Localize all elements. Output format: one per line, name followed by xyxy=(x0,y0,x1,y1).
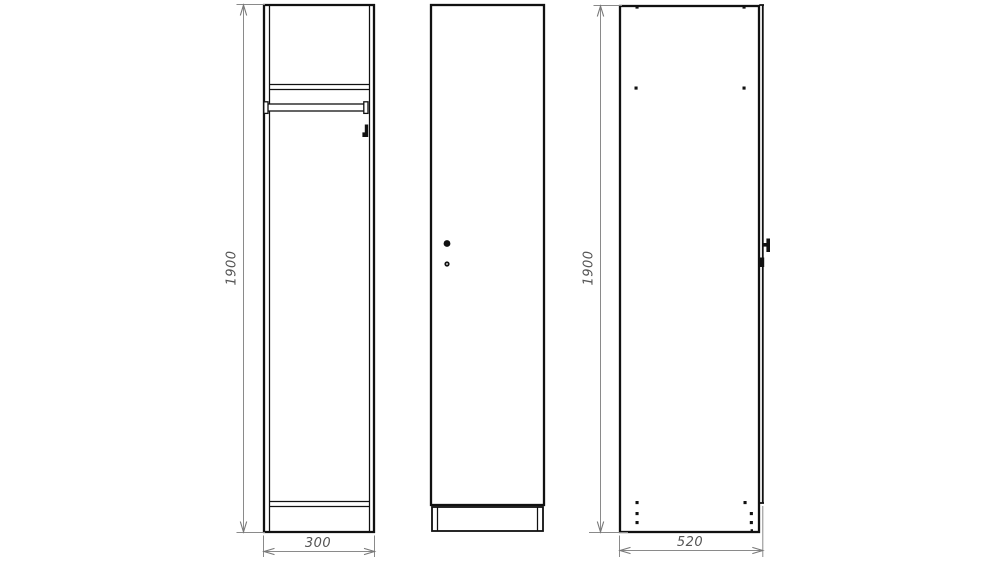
side-panel-outline xyxy=(620,6,759,532)
screw-dots-icon xyxy=(635,6,754,532)
front-open-view xyxy=(263,4,375,533)
technical-drawing-canvas: 1900 300 xyxy=(0,0,1000,565)
handle-knob-icon xyxy=(759,239,770,268)
dim-front-height: 1900 xyxy=(225,5,266,533)
hanger-rail-bar xyxy=(268,104,365,111)
coat-hook-icon xyxy=(362,125,368,138)
latch-block xyxy=(759,258,765,268)
dim-side-height-label: 1900 xyxy=(582,250,597,285)
dim-side-depth-label: 520 xyxy=(677,535,703,550)
dim-front-height-label: 1900 xyxy=(225,250,240,285)
front-view-inner-walls-and-shelves xyxy=(270,5,370,532)
side-view xyxy=(620,5,770,532)
lock-cylinder-icon xyxy=(444,240,451,247)
dim-front-width: 300 xyxy=(264,536,375,558)
keyhole-center xyxy=(446,263,448,265)
plinth-base xyxy=(432,507,543,531)
hanger-rail-bracket-right xyxy=(364,102,368,114)
locker-three-view-drawing: 1900 300 xyxy=(0,0,1000,565)
dim-front-height-lines xyxy=(237,5,266,533)
knob-head xyxy=(766,239,770,253)
door-outline xyxy=(431,5,544,505)
front-view-outline xyxy=(263,4,375,533)
hanger-rail xyxy=(264,102,368,114)
hanger-rail-bracket-left xyxy=(264,102,268,114)
door-closed-view xyxy=(431,5,544,531)
dim-front-width-label: 300 xyxy=(305,536,331,551)
plinth-outline xyxy=(432,507,543,531)
